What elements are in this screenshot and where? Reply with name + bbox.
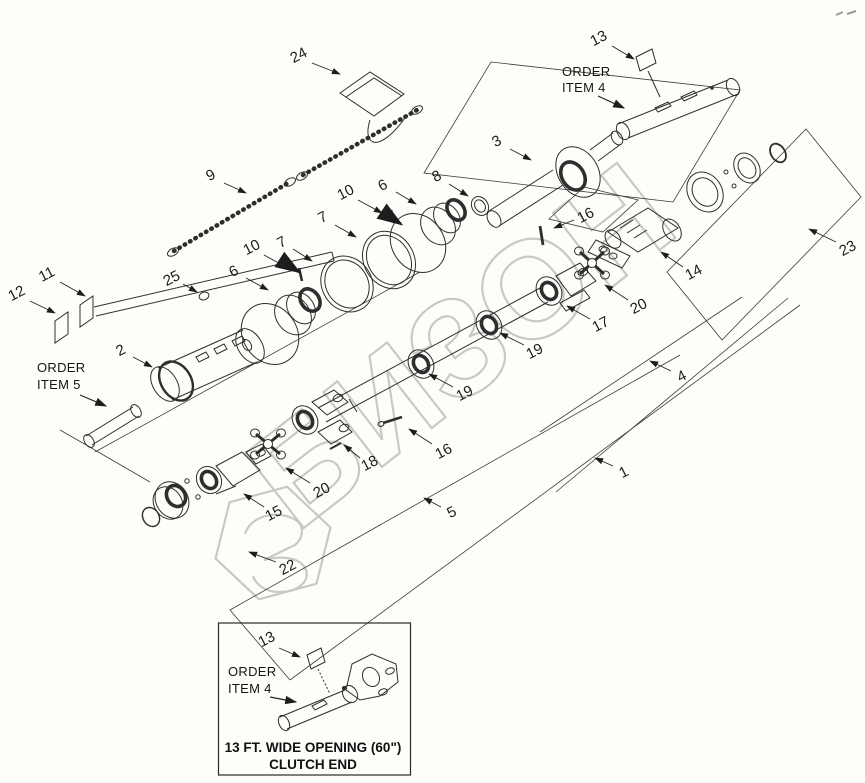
callout-3: 3 xyxy=(489,132,531,160)
order-item-5-line2: ITEM 5 xyxy=(37,377,81,392)
inset-shaft-top xyxy=(280,690,345,717)
inset-tag-leader xyxy=(318,669,330,694)
svg-text:9: 9 xyxy=(203,166,218,185)
id-tag-leader xyxy=(648,71,660,97)
bracket-bar-top xyxy=(94,252,332,307)
callout-8: 8 xyxy=(429,167,468,196)
bell-collar xyxy=(296,285,325,315)
svg-text:6: 6 xyxy=(226,262,241,281)
scan-artifact xyxy=(836,11,856,15)
parts-diagram-page: БИЗОН xyxy=(0,0,865,783)
chain-segment-2 xyxy=(303,110,417,175)
callout-23: 23 xyxy=(809,229,859,260)
inset-order-line2: ITEM 4 xyxy=(228,681,272,696)
callout-12: 12 xyxy=(5,282,55,313)
bell-rim xyxy=(230,292,311,375)
inset-order-arrow xyxy=(270,697,296,702)
ball-2 xyxy=(732,184,736,188)
svg-text:7: 7 xyxy=(274,233,289,252)
yoke-collar-outer xyxy=(191,462,226,498)
exploded-view-diagram: БИЗОН xyxy=(0,0,865,783)
order-item-4-arrow xyxy=(598,96,624,108)
inset-shaft-end xyxy=(276,714,292,733)
inset-shaft-slot xyxy=(312,700,327,710)
shaft-end-right xyxy=(724,76,742,97)
ball-2 xyxy=(196,495,200,499)
order-item-5-note: ORDER ITEM 5 xyxy=(37,360,106,406)
race-ring-inner xyxy=(687,173,723,211)
ball-1 xyxy=(724,170,728,174)
tube-slot-1 xyxy=(196,352,209,362)
callout-7b: 7 xyxy=(274,233,312,261)
nylon-ring-7b xyxy=(310,246,383,322)
callout-10a: 10 xyxy=(334,181,382,213)
callout-11: 11 xyxy=(36,263,85,296)
inset-callout-13: 13 xyxy=(255,628,300,657)
plate-11 xyxy=(80,296,93,327)
svg-text:23: 23 xyxy=(836,237,859,260)
svg-text:5: 5 xyxy=(444,503,459,522)
order-item-4-note: ORDER ITEM 4 xyxy=(562,64,624,108)
o-ring-small xyxy=(767,141,789,165)
callout-4: 4 xyxy=(650,361,689,386)
svg-text:11: 11 xyxy=(36,263,58,285)
callout-2: 2 xyxy=(113,341,152,367)
svg-text:12: 12 xyxy=(5,282,28,305)
callout-13-top: 13 xyxy=(587,27,634,59)
inset-id-tag xyxy=(307,648,325,669)
tube-slot-2 xyxy=(214,344,227,354)
svg-text:24: 24 xyxy=(287,44,310,67)
inset-order-item-4-note: ORDER ITEM 4 xyxy=(228,664,296,702)
shaft-slot-1 xyxy=(655,102,671,112)
inset-caption-line2: CLUTCH END xyxy=(269,757,357,772)
nylon-ring-7a-inner xyxy=(357,227,420,293)
inset-ear-hole-2 xyxy=(378,688,389,697)
svg-text:3: 3 xyxy=(489,132,504,151)
inset-caption-line1: 13 FT. WIDE OPENING (60") xyxy=(225,740,402,755)
bell-body xyxy=(267,288,319,342)
order-item-4-line1: ORDER xyxy=(562,64,610,79)
inset-yoke-bore xyxy=(359,664,383,689)
inset-drawing xyxy=(276,648,398,732)
race-ring-outer xyxy=(679,165,730,219)
pin-top-line xyxy=(86,407,133,436)
seal-ring xyxy=(728,148,765,188)
order-item-5-arrow xyxy=(80,395,106,406)
svg-text:25: 25 xyxy=(160,267,183,290)
snap-ring-2 xyxy=(152,355,200,407)
o-ring-21 xyxy=(139,504,163,529)
bell-guard-lower xyxy=(230,285,325,376)
callout-6a: 6 xyxy=(375,176,416,204)
pin-end-left xyxy=(81,433,96,450)
inset-grease-fitting xyxy=(342,686,346,690)
svg-text:13: 13 xyxy=(255,628,278,651)
order-item-5-line1: ORDER xyxy=(37,360,85,375)
callout-6b: 6 xyxy=(226,262,268,290)
shaft-bottom-line xyxy=(628,94,738,138)
bearing-ring-set-right xyxy=(679,141,789,219)
phantom-corner-left xyxy=(60,430,150,482)
callout-24: 24 xyxy=(287,44,340,74)
inset-shaft-bottom xyxy=(287,702,352,729)
inset-ear-hole-1 xyxy=(385,667,396,676)
bearing-face xyxy=(163,482,190,510)
svg-text:6: 6 xyxy=(375,176,390,195)
pin-10b xyxy=(299,268,302,281)
pin-end-right xyxy=(128,403,143,420)
svg-text:8: 8 xyxy=(429,167,444,186)
phantom-box-right xyxy=(667,129,861,340)
order-item-4-shaft xyxy=(614,49,742,142)
svg-text:1: 1 xyxy=(616,463,631,482)
inset-box: 13 ORDER ITEM 4 13 FT. WIDE OPENING (60"… xyxy=(219,623,411,775)
nylon-ring-7b-inner xyxy=(316,252,378,317)
callout-5: 5 xyxy=(424,498,459,522)
tube-end-hole xyxy=(240,338,253,352)
callout-1: 1 xyxy=(595,458,631,482)
callout-9: 9 xyxy=(203,166,246,193)
ball-1 xyxy=(185,479,189,483)
svg-text:7: 7 xyxy=(315,208,330,227)
cross-center xyxy=(588,259,597,268)
order-item-4-line2: ITEM 4 xyxy=(562,80,606,95)
shield-plates xyxy=(55,252,334,343)
warning-tag xyxy=(340,72,404,116)
yoke-bore xyxy=(198,469,219,492)
svg-text:4: 4 xyxy=(674,367,689,386)
shaft-pin-hole xyxy=(710,86,714,90)
callout-7a: 7 xyxy=(315,208,356,237)
inset-yoke-collar xyxy=(339,683,360,706)
watermark: БИЗОН xyxy=(209,134,702,612)
plate-12 xyxy=(55,312,68,343)
svg-text:10: 10 xyxy=(240,236,263,259)
svg-text:13: 13 xyxy=(587,27,610,50)
svg-text:2: 2 xyxy=(113,341,128,360)
inset-order-line1: ORDER xyxy=(228,664,276,679)
chain-segment-1 xyxy=(174,183,288,251)
inset-yoke-body xyxy=(346,654,398,700)
bracket-bar-end xyxy=(332,252,334,261)
seal-ring-inner xyxy=(734,154,759,181)
callout-25: 25 xyxy=(160,267,197,292)
bushing-8 xyxy=(468,193,492,218)
id-tag-13 xyxy=(636,49,656,71)
svg-text:10: 10 xyxy=(334,181,357,204)
